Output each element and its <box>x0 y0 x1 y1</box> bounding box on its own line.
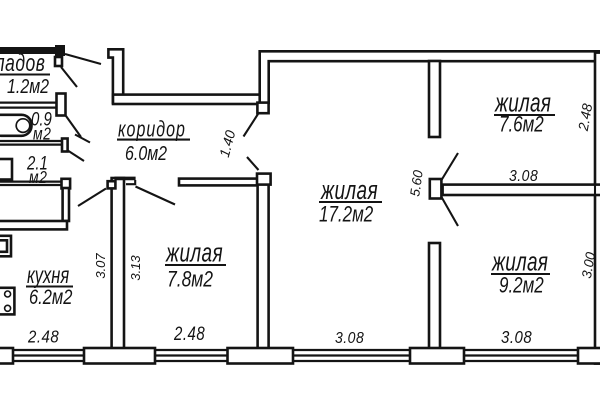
svg-text:17.2м2: 17.2м2 <box>319 203 373 228</box>
svg-text:коридор: коридор <box>118 117 186 142</box>
svg-text:3.08: 3.08 <box>335 329 364 347</box>
svg-text:жилая: жилая <box>491 246 548 276</box>
svg-text:жилая: жилая <box>320 175 378 205</box>
svg-text:6.0м2: 6.0м2 <box>125 141 167 164</box>
svg-text:3.07: 3.07 <box>93 253 108 279</box>
svg-text:кладов: кладов <box>0 49 45 77</box>
svg-text:6.2м2: 6.2м2 <box>29 286 73 309</box>
svg-text:7.6м2: 7.6м2 <box>499 113 544 138</box>
svg-text:3.08: 3.08 <box>509 167 538 185</box>
svg-text:3.13: 3.13 <box>128 255 143 281</box>
svg-text:2.48: 2.48 <box>173 322 205 344</box>
svg-text:2.48: 2.48 <box>27 328 59 347</box>
svg-text:7.8м2: 7.8м2 <box>167 268 213 293</box>
svg-text:кухня: кухня <box>27 263 69 288</box>
svg-text:3.08: 3.08 <box>501 328 532 347</box>
svg-text:1.2м2: 1.2м2 <box>7 74 49 97</box>
svg-text:жилая: жилая <box>165 237 223 267</box>
svg-text:9.2м2: 9.2м2 <box>499 274 544 299</box>
